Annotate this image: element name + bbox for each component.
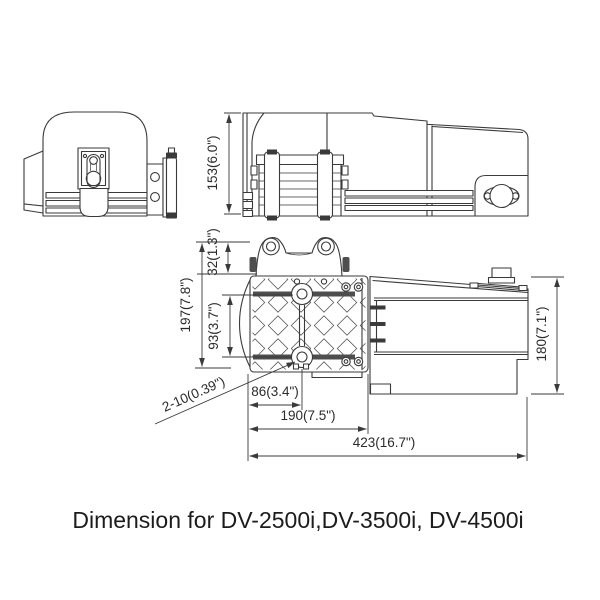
drum-side-tab bbox=[251, 166, 257, 175]
drum-side-tab bbox=[342, 166, 348, 175]
motor-foot-notch bbox=[371, 384, 391, 394]
gear-housing-slat bbox=[345, 206, 473, 211]
motor-top-tab-base bbox=[489, 278, 515, 284]
plate-bottom-lip bbox=[312, 372, 362, 378]
dim-label-153: 153(6.0") bbox=[205, 135, 220, 190]
left-foot-block bbox=[243, 211, 253, 217]
clutch-knob bbox=[490, 185, 513, 208]
roller-pin-top bbox=[169, 148, 175, 153]
bow-bracket-eye-hole bbox=[267, 242, 276, 251]
boss-nub bbox=[294, 364, 299, 369]
mount-hole bbox=[297, 352, 307, 362]
roller-cap-bottom bbox=[166, 213, 177, 219]
tie-bar-bolt bbox=[267, 150, 277, 155]
gear-housing-slat bbox=[345, 191, 473, 197]
rear-wedge-lip bbox=[24, 204, 43, 213]
guide-roller bbox=[167, 157, 177, 217]
mount-plate-hole bbox=[151, 173, 160, 182]
motor-left-lug bbox=[371, 339, 386, 343]
dim-label-86: 86(3.4") bbox=[251, 384, 299, 399]
end-view bbox=[24, 112, 177, 219]
left-foot-block bbox=[243, 202, 253, 209]
side-mount-plate bbox=[147, 164, 163, 215]
rail-end-cap bbox=[519, 286, 527, 291]
bracket-pivot-tab bbox=[343, 257, 350, 272]
drum-side-tab bbox=[251, 180, 257, 189]
winch-technical-drawing: 153(6.0") 197(7.8") 32(1.3") 93(3.7") 18… bbox=[0, 0, 600, 600]
motor-left-lug bbox=[371, 306, 386, 310]
mount-slot-bar bbox=[253, 292, 292, 297]
tie-bar-bolt bbox=[320, 216, 330, 221]
dimension-diagram-page: 153(6.0") 197(7.8") 32(1.3") 93(3.7") 18… bbox=[0, 0, 600, 600]
tie-bar-bolt bbox=[320, 150, 330, 155]
bow-bracket-eye-hole bbox=[322, 242, 331, 251]
rail-end-cap bbox=[470, 283, 478, 288]
mount-plate-hole bbox=[151, 193, 160, 202]
bracket-pivot-tab bbox=[250, 257, 257, 272]
tie-bar bbox=[318, 152, 333, 218]
left-foot-block bbox=[243, 193, 253, 200]
bottom-view bbox=[240, 238, 529, 394]
ext-line bbox=[224, 113, 241, 214]
dim-label-197: 197(7.8") bbox=[178, 277, 193, 332]
tie-bar bbox=[265, 152, 280, 218]
dim-label-423: 423(16.7") bbox=[353, 435, 416, 450]
dim-label-93: 93(3.7") bbox=[206, 302, 221, 350]
rear-wedge bbox=[24, 151, 43, 206]
gear-housing-slat bbox=[345, 198, 473, 204]
dim-label-180: 180(7.1") bbox=[534, 306, 549, 361]
mount-hole bbox=[297, 289, 307, 299]
roller-cap-top bbox=[166, 153, 177, 159]
drum-side-tab bbox=[342, 180, 348, 189]
motor-top-tab bbox=[492, 268, 511, 279]
motor-housing-outline bbox=[370, 277, 528, 395]
caption: Dimension for DV-2500i,DV-3500i, DV-4500… bbox=[72, 507, 523, 533]
dim-label-32: 32(1.3") bbox=[205, 228, 220, 276]
boss-nub bbox=[304, 364, 309, 369]
side-view bbox=[243, 113, 528, 221]
dim-label-hole-note: 2-10(0.39") bbox=[160, 374, 227, 415]
motor-left-lug bbox=[371, 322, 386, 326]
dim-label-190: 190(7.5") bbox=[280, 408, 335, 423]
tie-bar-bolt bbox=[267, 216, 277, 221]
mount-slot-bar bbox=[311, 292, 355, 297]
fairlead-foot-block bbox=[80, 189, 108, 217]
drum-silhouette-arc bbox=[240, 278, 252, 369]
